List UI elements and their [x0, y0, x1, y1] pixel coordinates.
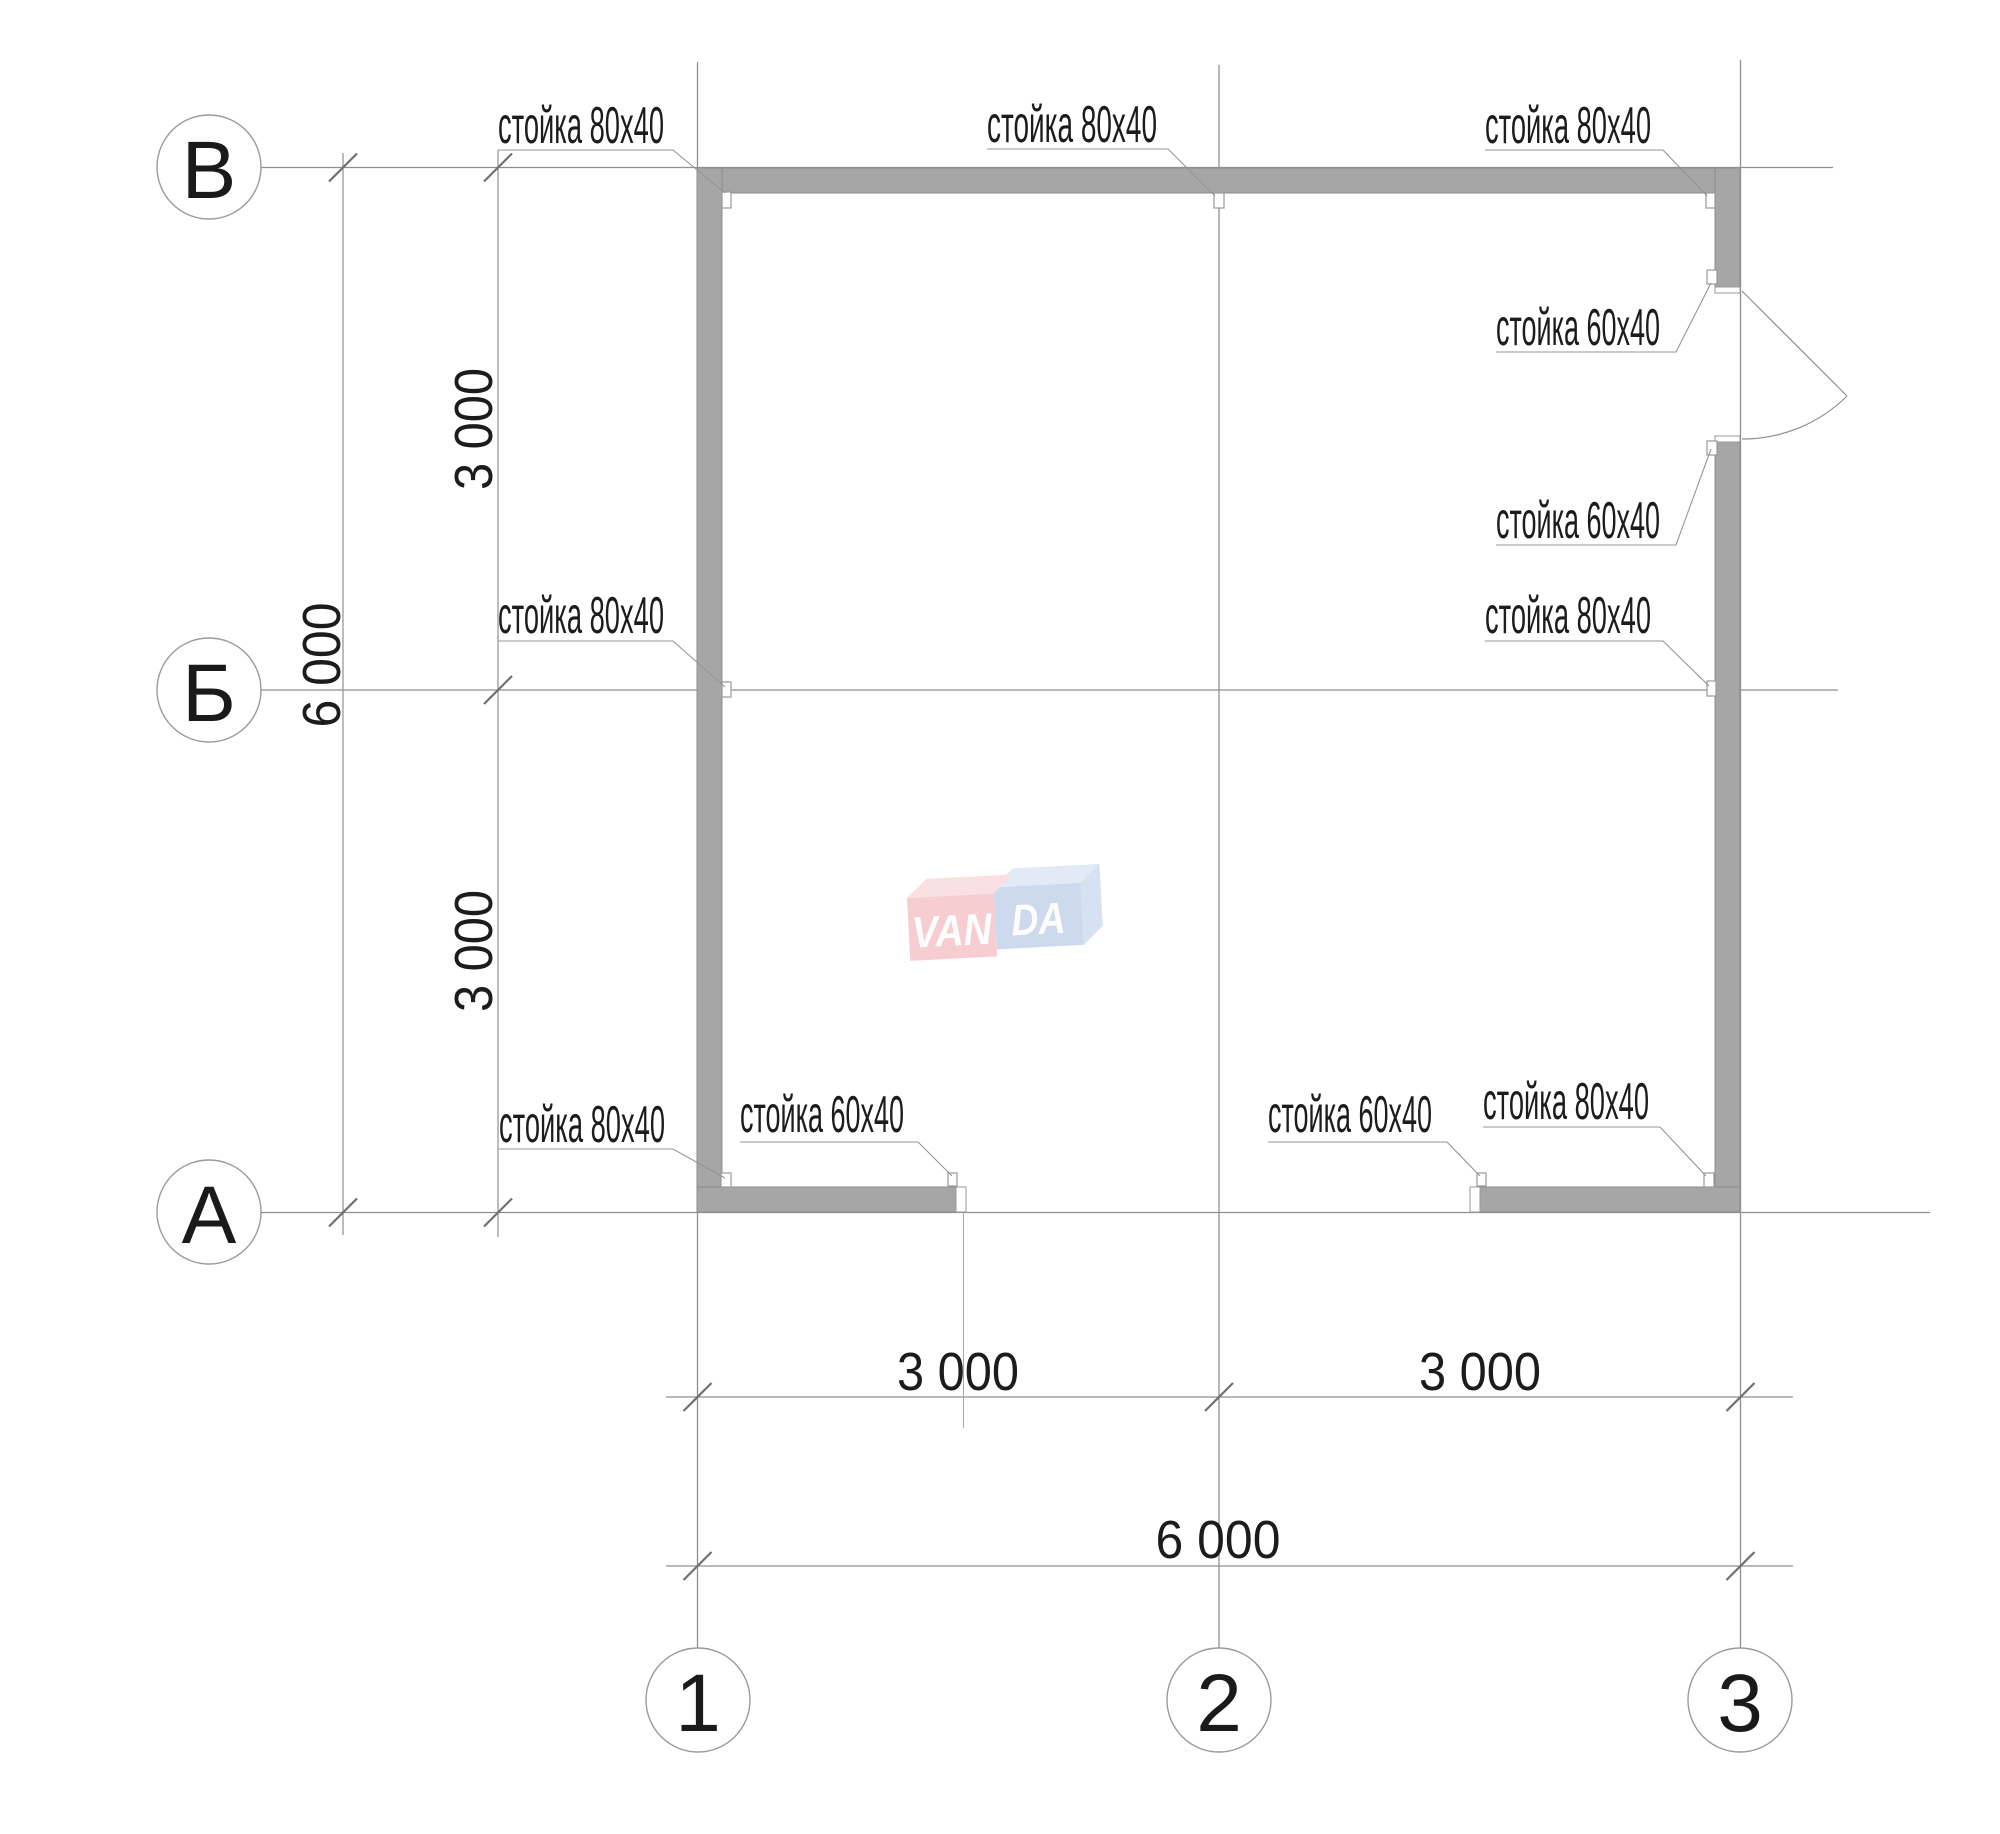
dim-text-left-lower: 3 000	[444, 890, 504, 1012]
wall-top	[697, 168, 1740, 193]
stud-label: стойка 80х40	[987, 96, 1157, 154]
door-jamb-cap-lower	[1715, 436, 1740, 442]
leader-top-left	[498, 150, 725, 193]
leader-middle-left	[498, 641, 725, 687]
logo-text-van: VAN	[911, 905, 995, 958]
floor-plan-drawing: стойка 80х40 стойка 80х40 стойка 80х40 с…	[0, 0, 2000, 1834]
leader-bottom-right-corner	[1483, 1127, 1706, 1176]
axis-label-row-v: В	[182, 125, 237, 216]
door-jamb-cap-upper	[1715, 287, 1740, 293]
stud-door-upper	[1707, 270, 1717, 284]
grid-axis-lines	[261, 60, 1930, 1648]
logo-text-da: DA	[1010, 894, 1066, 946]
dim-text-left-upper: 3 000	[444, 368, 504, 490]
door-leaf	[1742, 291, 1847, 396]
stud-door-lower	[1707, 441, 1717, 455]
stud-label: стойка 80х40	[1485, 587, 1651, 645]
wall-bottom-left-segment	[697, 1187, 956, 1212]
stud-opening-left	[948, 1173, 957, 1186]
wall-right-lower	[1715, 442, 1740, 1212]
leader-middle-right	[1485, 641, 1709, 686]
stud-label: стойка 80х40	[498, 97, 664, 155]
dim-text-left-total: 6 000	[292, 603, 352, 728]
stud-label: стойка 60х40	[740, 1086, 904, 1144]
stud-label: стойка 60х40	[1496, 299, 1660, 357]
watermark-logo: VAN DA	[906, 864, 1104, 961]
stud-top-left	[722, 192, 731, 208]
stud-label: стойка 80х40	[1485, 97, 1651, 155]
opening-jamb-cap-right	[1470, 1187, 1480, 1212]
stud-bottom-left-corner	[721, 1173, 731, 1187]
dimension-lines	[343, 150, 1793, 1566]
wall-bottom-right-segment	[1480, 1187, 1740, 1212]
stud-labels: стойка 80х40 стойка 80х40 стойка 80х40 с…	[498, 96, 1660, 1154]
dim-text-bottom-right: 3 000	[1419, 1342, 1541, 1402]
axis-label-col-3: 3	[1717, 1658, 1763, 1749]
stud-middle-left	[722, 682, 731, 697]
axis-label-col-1: 1	[675, 1658, 721, 1749]
opening-jamb-cap-left	[956, 1187, 966, 1212]
door-swing	[1742, 291, 1847, 439]
axis-label-row-a: А	[182, 1170, 237, 1261]
stud-label: стойка 80х40	[1483, 1073, 1649, 1131]
axis-label-col-2: 2	[1196, 1658, 1242, 1749]
floor-plan-sheet: стойка 80х40 стойка 80х40 стойка 80х40 с…	[0, 0, 2000, 1834]
dim-text-bottom-left: 3 000	[897, 1342, 1019, 1402]
stud-label: стойка 60х40	[1268, 1086, 1432, 1144]
stud-label: стойка 60х40	[1496, 492, 1660, 550]
wall-left	[697, 168, 722, 1212]
leader-bottom-opening-left	[740, 1142, 952, 1176]
leader-bottom-opening-right	[1268, 1142, 1480, 1176]
stud-label: стойка 80х40	[499, 1096, 665, 1154]
stud-top-middle	[1214, 193, 1224, 208]
dim-text-bottom-total: 6 000	[1156, 1510, 1281, 1570]
stud-label: стойка 80х40	[498, 587, 664, 645]
axis-label-row-b: Б	[182, 648, 236, 739]
dimension-texts: 3 000 3 000 6 000 3 000 6 000 3 000	[292, 368, 1541, 1570]
door-arc	[1742, 396, 1847, 439]
stud-middle-right	[1707, 681, 1716, 696]
stud-top-right	[1706, 193, 1715, 208]
wall-right-upper	[1715, 168, 1740, 287]
